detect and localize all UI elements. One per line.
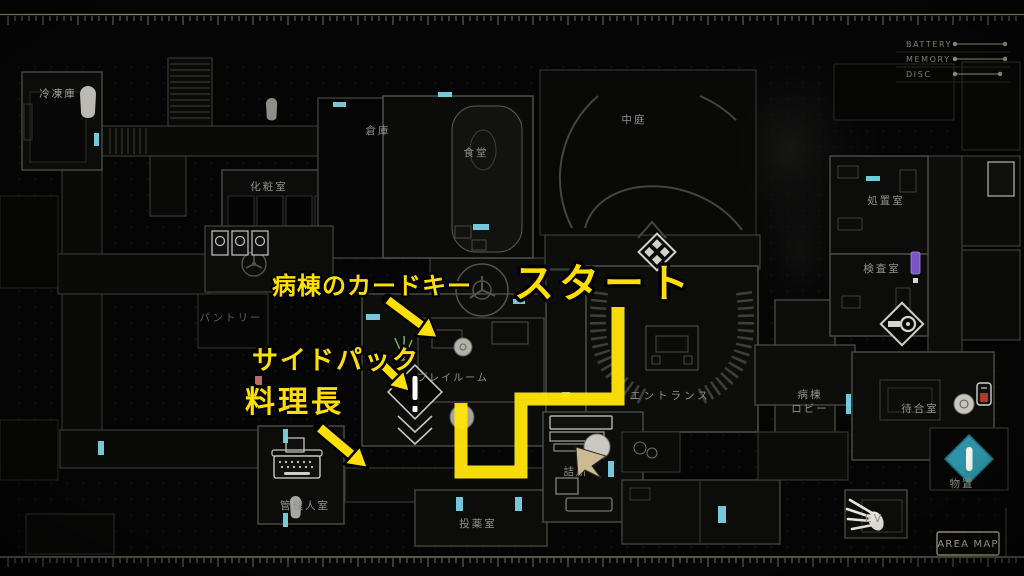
room-label-freezer: 冷凍庫 [39, 87, 77, 100]
room-label-entrance: エントランス [630, 390, 711, 402]
door-marker [94, 133, 99, 146]
body-icon [266, 98, 277, 120]
door-marker [283, 513, 288, 527]
hud-meter-label: BATTERY [906, 40, 952, 49]
area-map-screen: 冷凍庫 化粧室 倉庫 食堂 中庭 処置室 検査室 パントリー プレイルーム エン… [0, 0, 1024, 576]
room-label-storehouse: 倉庫 [366, 124, 391, 137]
room-label-waiting-room: 待合室 [901, 402, 939, 415]
hud-meter-label: MEMORY [906, 55, 951, 64]
room-label-elevator: EV [865, 512, 883, 525]
room-label-ward-lobby-1: 病棟 [798, 388, 823, 401]
door-marker [608, 461, 614, 477]
red-item-icon [255, 376, 262, 385]
area-map-label: AREA MAP [937, 539, 998, 550]
blood-bag-icon [977, 383, 991, 405]
body-icon [80, 86, 96, 118]
door-marker [333, 102, 346, 107]
annotation-side-pack: サイドパック [252, 346, 420, 376]
door-marker [456, 497, 463, 511]
door-marker [866, 176, 880, 181]
annotation-head-chef: 料理長 [245, 385, 344, 420]
door-marker [438, 92, 452, 97]
small-item-icon [913, 278, 918, 283]
room-label-dining-hall: 食堂 [464, 146, 489, 159]
room-label-pantry: パントリー [199, 312, 262, 324]
room-label-storage: 物置 [950, 477, 975, 490]
area-map-canvas: 冷凍庫 化粧室 倉庫 食堂 中庭 処置室 検査室 パントリー プレイルーム エン… [0, 0, 1024, 576]
annotation-start: スタート [514, 261, 694, 307]
room-label-playroom: プレイルーム [417, 372, 489, 384]
purple-item-icon [911, 252, 920, 274]
ball-icon [454, 338, 472, 356]
room-label-courtyard: 中庭 [622, 113, 647, 126]
room-label-powder-room: 化粧室 [250, 180, 288, 193]
room-label-treatment-room: 処置室 [867, 194, 905, 207]
room-label-exam-room: 検査室 [863, 262, 901, 275]
room-label-caretaker-room: 管理人室 [280, 499, 330, 512]
round-icon [954, 394, 974, 414]
room-label-medication-room: 投薬室 [459, 517, 497, 530]
door-marker [366, 314, 380, 320]
door-marker [515, 497, 522, 511]
door-marker [283, 429, 288, 443]
annotation-card-key: 病棟のカードキー [272, 272, 472, 300]
washer-icons [212, 231, 268, 255]
door-marker [98, 441, 104, 455]
door-marker [846, 394, 851, 414]
door-marker [718, 506, 726, 523]
door-marker [473, 224, 489, 230]
room-label-ward-lobby-2: ロビー [791, 403, 829, 415]
hud-meter-label: DISC [906, 70, 932, 79]
